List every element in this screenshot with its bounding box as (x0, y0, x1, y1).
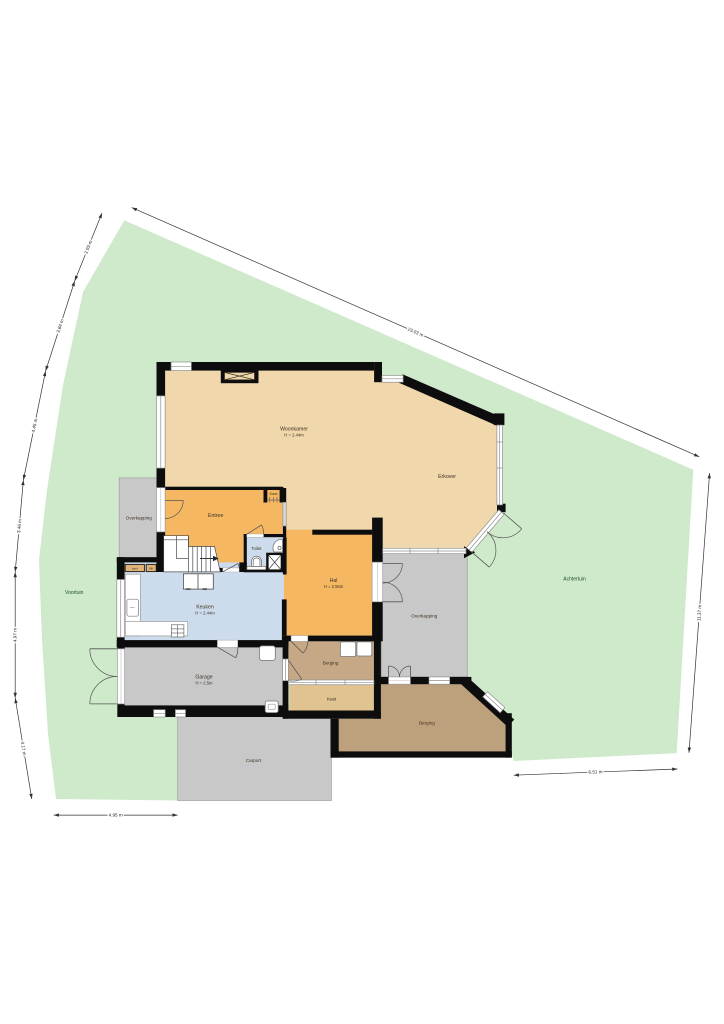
svg-text:Berging: Berging (323, 660, 339, 665)
svg-text:Toilet: Toilet (251, 546, 262, 551)
svg-text:Voortuin: Voortuin (65, 590, 84, 596)
svg-text:6.51 m: 6.51 m (588, 769, 602, 775)
svg-text:Woonkamer: Woonkamer (280, 426, 308, 432)
svg-text:Entree: Entree (208, 513, 223, 519)
svg-text:Garage: Garage (195, 674, 212, 680)
svg-text:kast: kast (132, 567, 138, 571)
svg-text:4.97 m: 4.97 m (13, 628, 18, 642)
svg-text:4.95 m: 4.95 m (109, 813, 123, 818)
svg-text:MK: MK (149, 567, 154, 571)
svg-text:Overkapping: Overkapping (126, 516, 152, 521)
svg-text:H = 2.44m: H = 2.44m (195, 611, 215, 616)
svg-text:Berging: Berging (419, 720, 435, 725)
svg-text:Carport: Carport (246, 758, 262, 763)
svg-text:Erkover: Erkover (438, 474, 456, 480)
svg-text:Keuken: Keuken (196, 604, 214, 610)
svg-text:H = 2.5m: H = 2.5m (195, 681, 213, 686)
svg-text:Achtertuin: Achtertuin (563, 576, 586, 582)
svg-text:Kast: Kast (327, 696, 337, 701)
svg-text:H = 2.55m: H = 2.55m (324, 584, 344, 589)
svg-text:Hal: Hal (330, 578, 338, 584)
svg-text:Overkapping: Overkapping (411, 614, 437, 619)
svg-text:Kast: Kast (269, 491, 278, 496)
svg-text:H = 2.44m: H = 2.44m (284, 433, 304, 438)
